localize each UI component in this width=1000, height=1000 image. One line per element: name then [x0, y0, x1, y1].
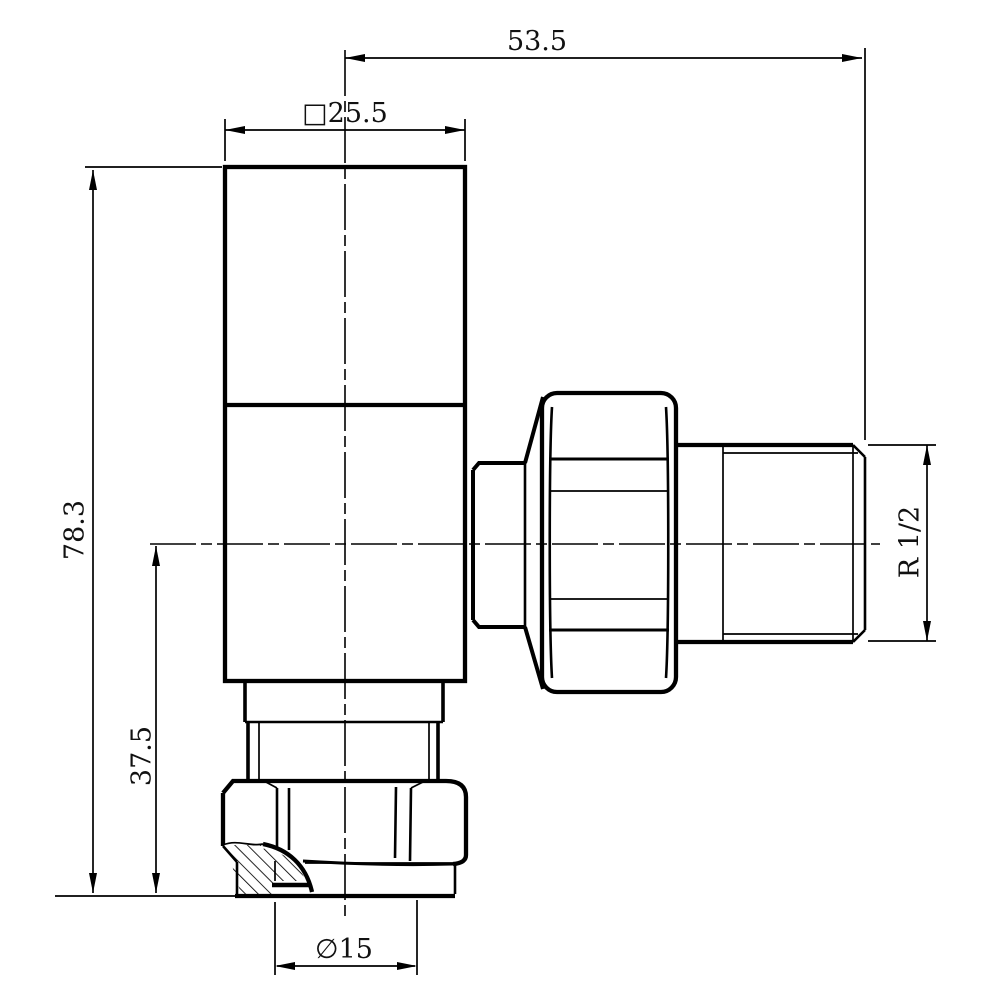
radiator-valve-engineering-drawing: 53.5 □25.5 78.3 37.5 R 1/2 ∅15	[0, 0, 1000, 1000]
dim-thread-label: R 1/2	[895, 506, 926, 578]
dim-bore-label: ∅15	[315, 934, 373, 965]
dim-37-label: 37.5	[127, 726, 158, 786]
technical-drawing-canvas: 53.5 □25.5 78.3 37.5 R 1/2 ∅15	[0, 0, 1000, 1000]
dim-78-label: 78.3	[60, 500, 91, 560]
dim-head-label: □25.5	[302, 98, 388, 129]
drawing-background	[0, 0, 1000, 1000]
dim-span-label: 53.5	[507, 26, 567, 57]
